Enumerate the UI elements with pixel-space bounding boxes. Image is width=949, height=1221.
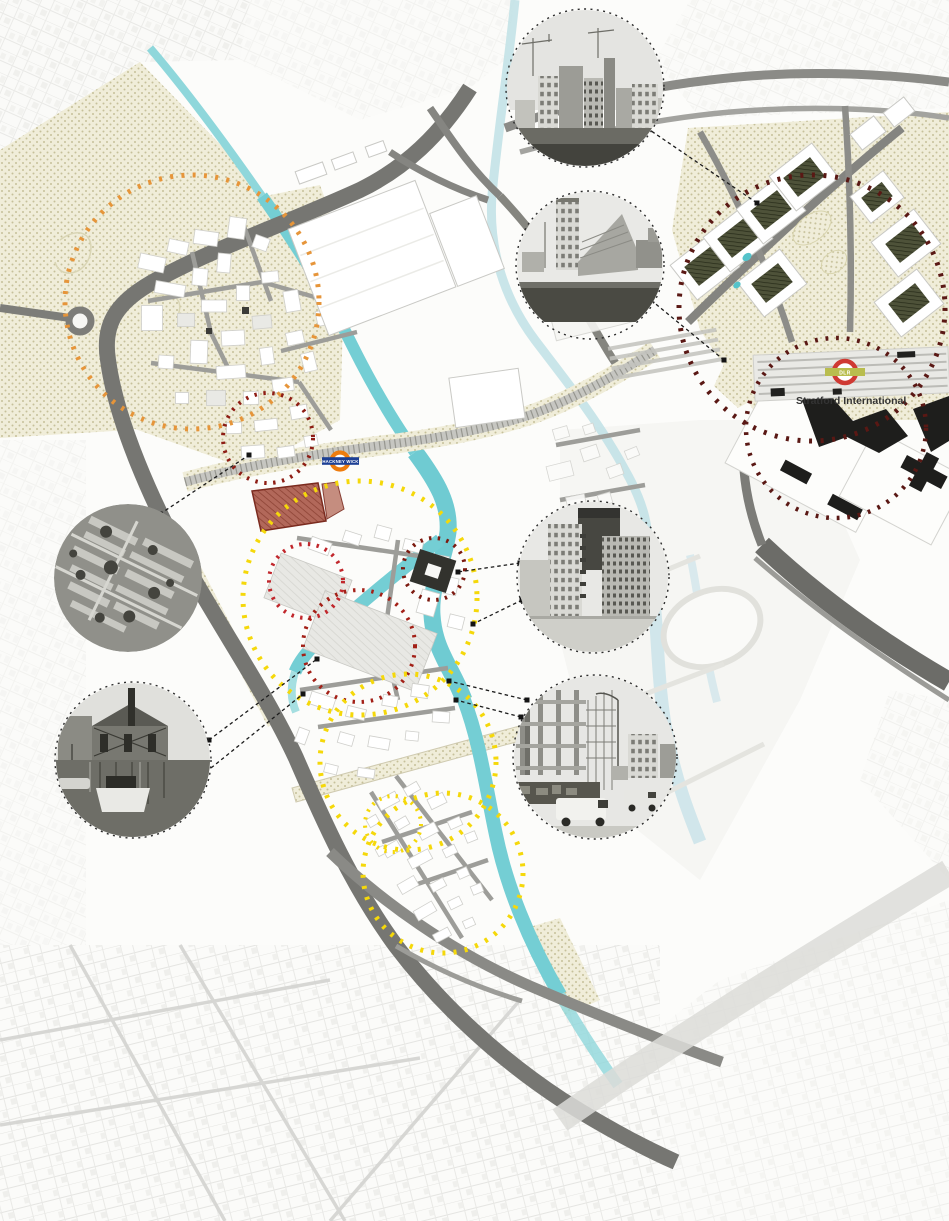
roundabout [69, 310, 91, 332]
stratford-international-label: Stratford International [796, 395, 906, 407]
site-analysis-map: HACKNEY WICK DLR Stratford International [0, 0, 949, 1221]
dlr-badge-label: DLR [839, 371, 850, 377]
boat-icon [96, 788, 150, 812]
chimney-icon [128, 688, 135, 726]
map-poster: HACKNEY WICK DLR Stratford International [0, 0, 949, 1221]
hackney-wick-station-label: HACKNEY WICK [322, 459, 359, 464]
